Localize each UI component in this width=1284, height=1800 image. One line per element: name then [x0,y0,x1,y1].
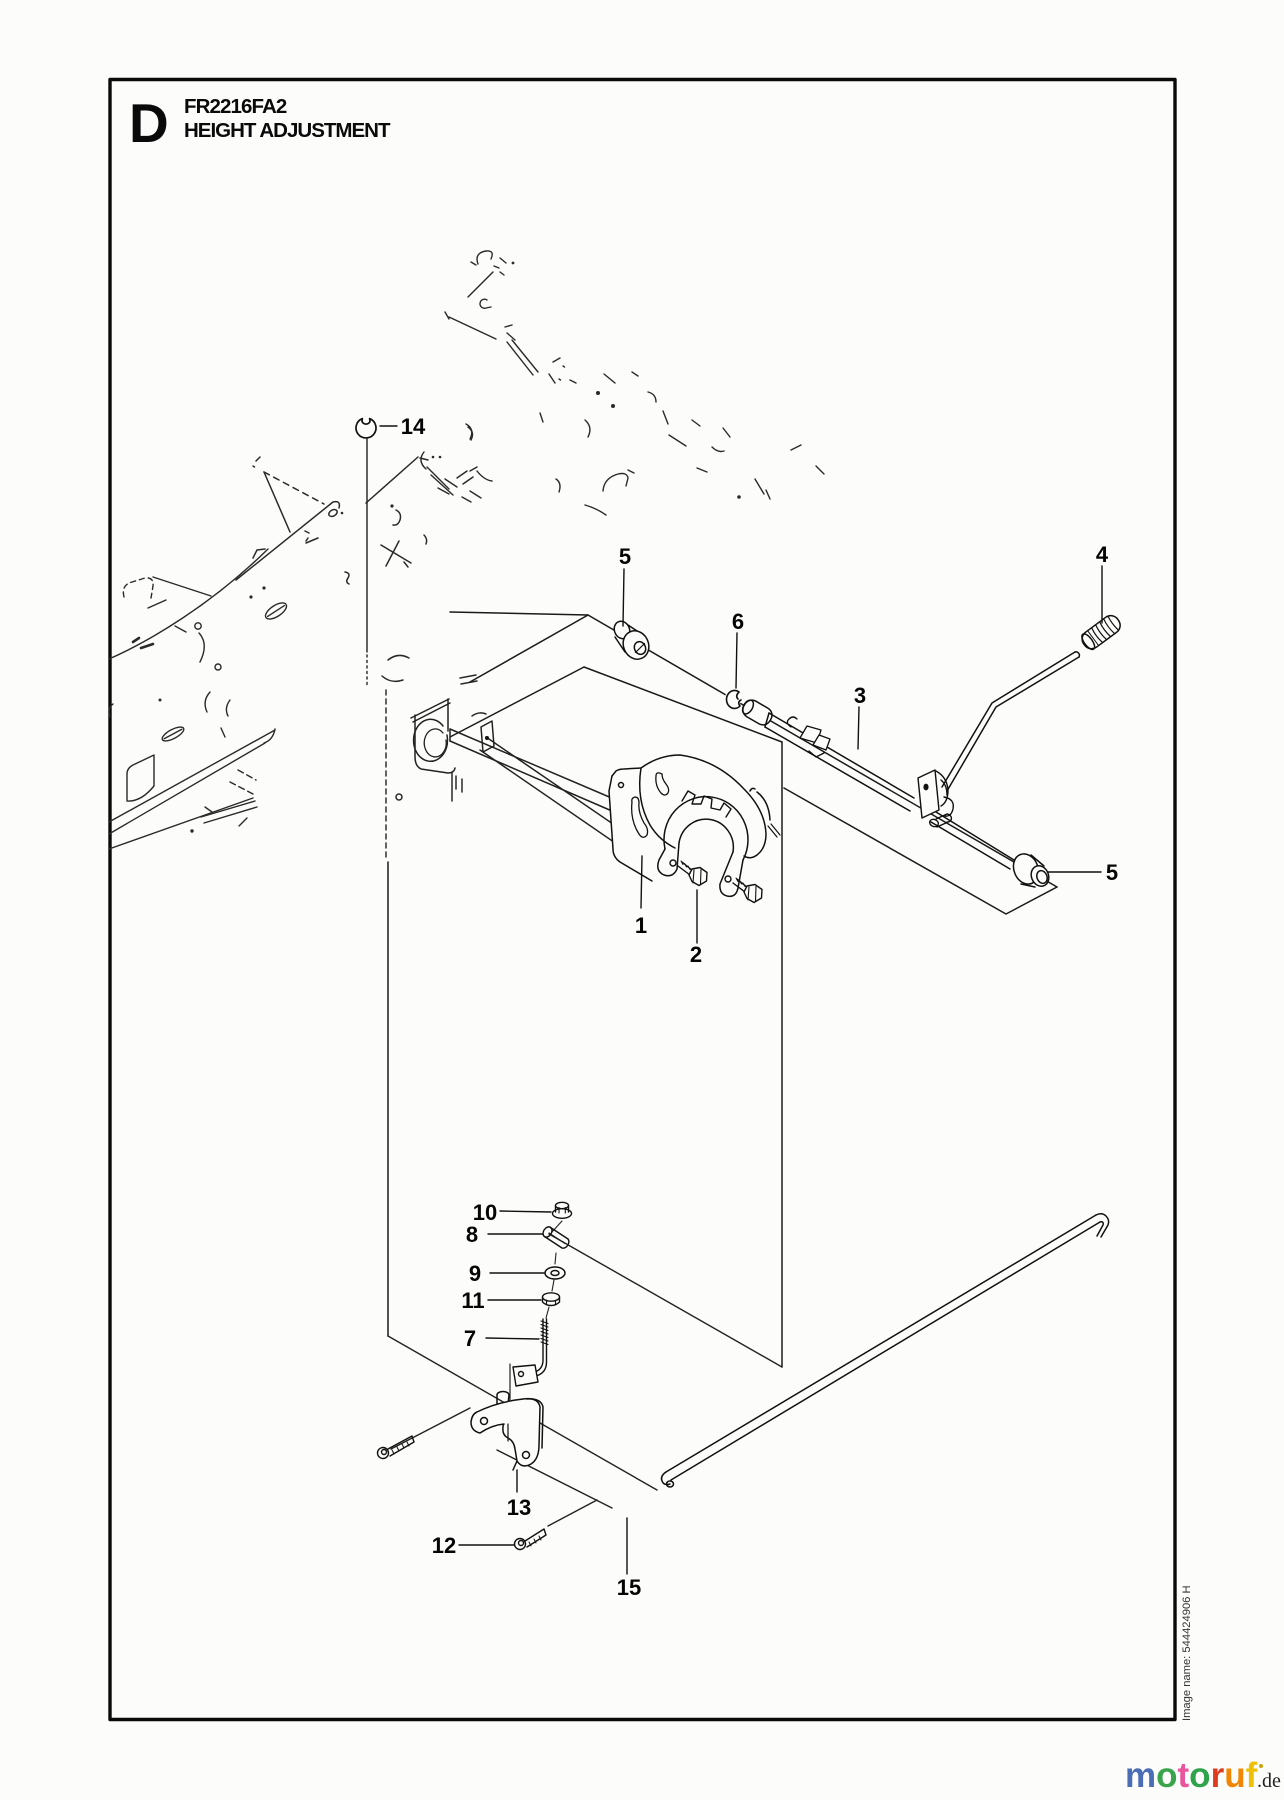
svg-text:motoruf: motoruf [1125,1756,1258,1795]
svg-text:4: 4 [1096,542,1109,567]
svg-text:2: 2 [690,942,702,967]
svg-text:11: 11 [461,1288,484,1313]
svg-text:14: 14 [401,414,426,439]
svg-text:8: 8 [466,1222,478,1247]
svg-text:5: 5 [619,544,631,569]
svg-text:5: 5 [1106,860,1118,885]
svg-text:12: 12 [432,1533,456,1558]
svg-text:HEIGHT ADJUSTMENT: HEIGHT ADJUSTMENT [184,119,391,142]
svg-text:7: 7 [464,1326,476,1351]
svg-text:Image name: 544424906 H: Image name: 544424906 H [1181,1585,1193,1721]
svg-text:13: 13 [507,1495,531,1520]
svg-text:6: 6 [732,609,744,634]
svg-text:.de: .de [1257,1770,1281,1792]
svg-text:9: 9 [469,1261,481,1286]
svg-text:1: 1 [635,913,647,938]
svg-text:D: D [129,92,169,154]
svg-text:FR2216FA2: FR2216FA2 [184,95,287,118]
svg-text:15: 15 [617,1575,641,1600]
svg-text:3: 3 [854,683,866,708]
